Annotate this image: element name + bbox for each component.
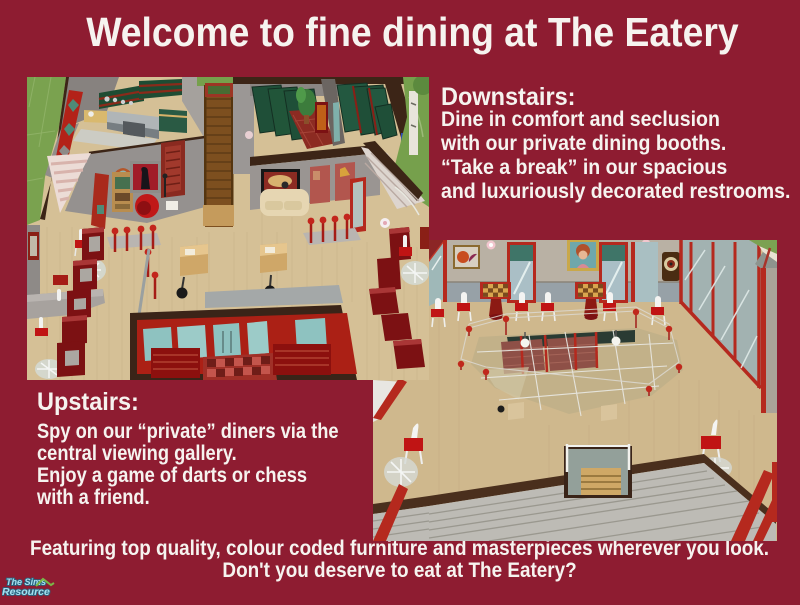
svg-text:Resource: Resource (2, 586, 50, 598)
